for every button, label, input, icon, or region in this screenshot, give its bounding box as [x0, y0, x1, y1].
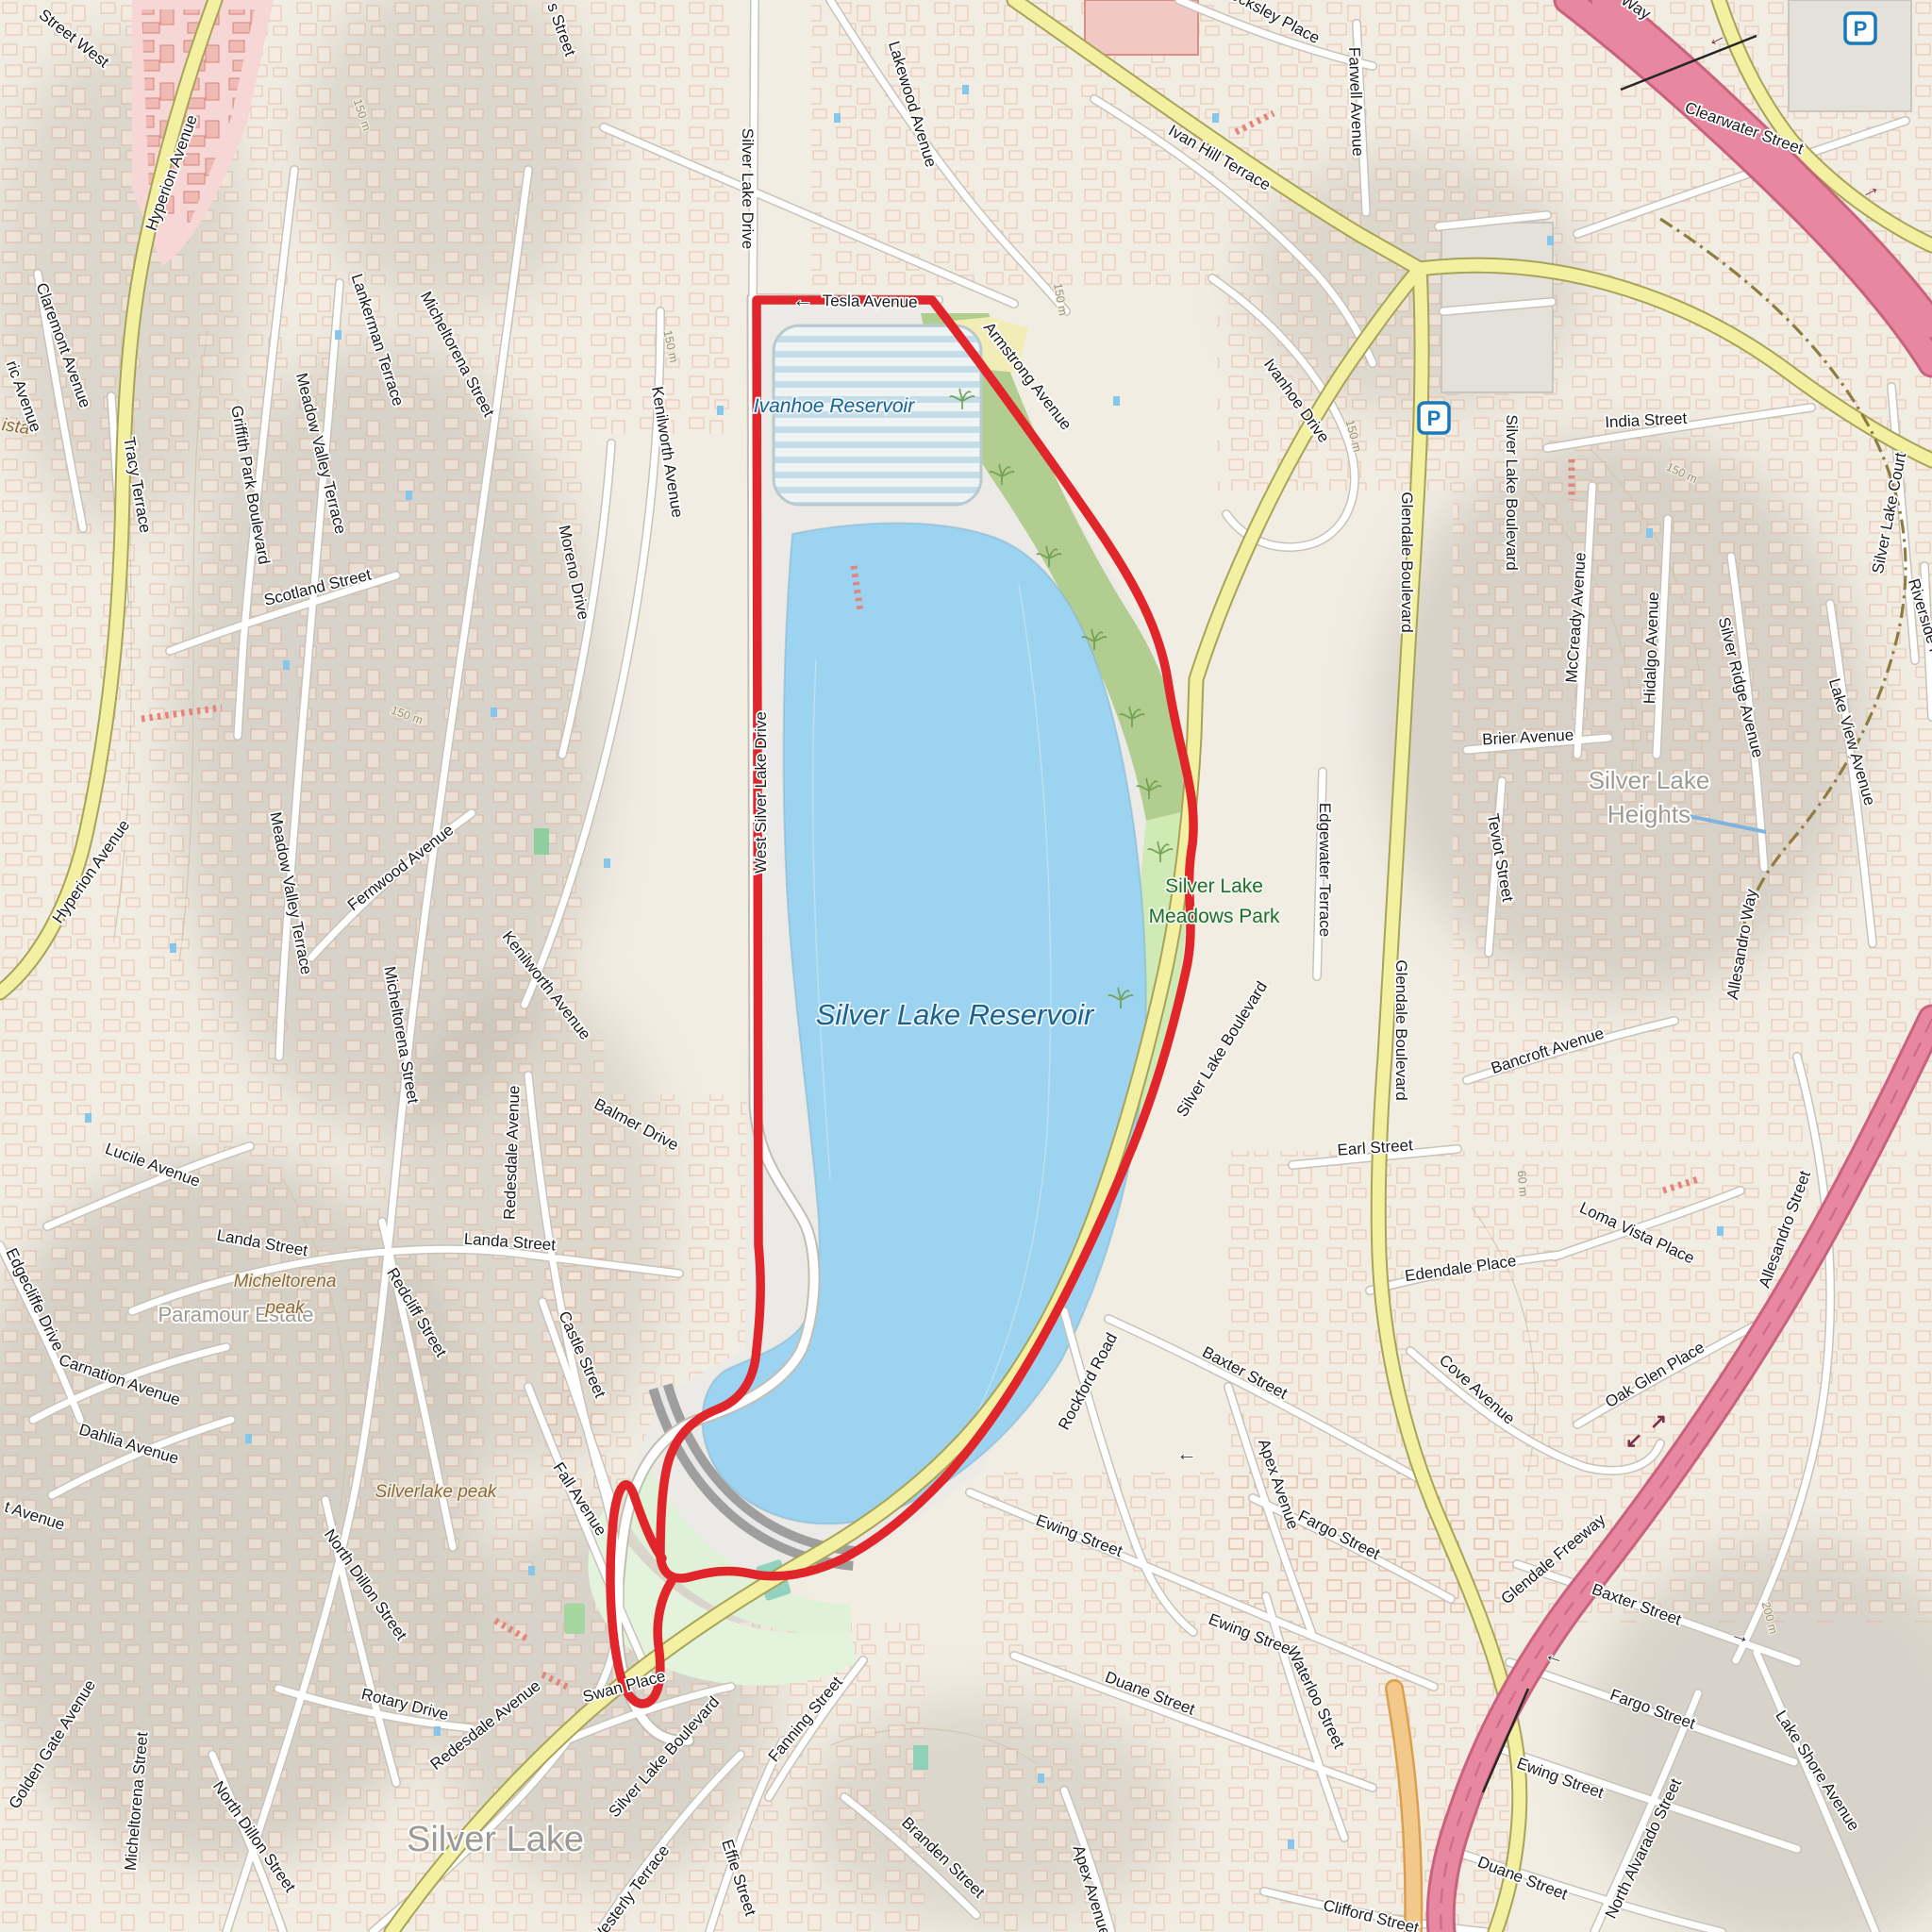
building-cluster [0, 0, 736, 434]
pool [491, 708, 497, 717]
building-cluster [981, 1472, 1509, 1932]
map-svg[interactable]: P P ← → ← ← ← → ↙ ↗ Ivanhoe Reservoir Si… [0, 0, 1932, 1932]
label-ivanhoe-reservoir: Ivanhoe Reservoir [754, 395, 915, 417]
sports-pitch [913, 1745, 928, 1770]
label-tesla-avenue: Tesla Avenue [823, 291, 918, 311]
pool [434, 1726, 441, 1736]
label-silver-lake-heights-1: Silver Lake [1589, 766, 1710, 794]
label-meadows-park-2: Meadows Park [1149, 906, 1280, 927]
label-silver-lake-drive: Silver Lake Drive [739, 128, 757, 250]
school-building [1085, 0, 1198, 55]
pool [1113, 396, 1120, 406]
pool [1288, 1840, 1294, 1849]
pool [1212, 113, 1219, 123]
sports-pitch [564, 1604, 585, 1634]
label-silver-lake-boulevard: Silver Lake Boulevard [1503, 414, 1521, 570]
label-farwell-avenue: Farwell Avenue [1345, 47, 1367, 158]
pool [335, 330, 341, 340]
label-silverlake-peak: Silverlake peak [375, 1482, 498, 1502]
parking-icon: P [1845, 13, 1875, 43]
label-contour-60m: 60 m [1515, 1170, 1530, 1197]
pool [1717, 1226, 1724, 1236]
map-canvas[interactable]: P P ← → ← ← ← → ↙ ↗ Ivanhoe Reservoir Si… [0, 0, 1932, 1932]
pool [406, 491, 412, 500]
label-silver-lake-neighborhood: Silver Lake [407, 1820, 584, 1859]
pool [604, 858, 610, 868]
label-glendale-boulevard: Glendale Boulevard [1398, 491, 1416, 632]
sports-pitch [534, 828, 549, 855]
freeway-arrow-icon: ↗ [1650, 1409, 1667, 1433]
pool [962, 85, 969, 94]
label-micheltorena-peak-1: Micheltorena [234, 1272, 337, 1291]
parking-icon: P [1419, 403, 1449, 433]
pool [283, 660, 290, 670]
label-west-silver-lake-drive: West Silver Lake Drive [752, 711, 770, 874]
pool [85, 1113, 92, 1123]
freeway-arrow-icon: ↙ [1625, 1428, 1642, 1452]
pool [1038, 1774, 1044, 1783]
pool [528, 1566, 535, 1575]
label-edgewater-terrace: Edgewater Terrace [1316, 803, 1334, 937]
parking-icon-letter: P [1854, 17, 1868, 41]
label-silver-lake-heights-2: Heights [1607, 800, 1690, 828]
pool [834, 113, 841, 123]
label-glendale-boulevard: Glendale Boulevard [1392, 959, 1410, 1100]
pool [170, 943, 176, 953]
parking-icon-letter: P [1427, 407, 1441, 430]
pool [245, 1434, 252, 1443]
oneway-arrow-icon: ← [792, 288, 813, 311]
label-meadows-park-1: Silver Lake [1165, 875, 1263, 897]
oneway-arrow-icon: ← [1176, 1441, 1197, 1465]
pool [1547, 236, 1554, 245]
pool [1646, 528, 1653, 538]
label-silver-lake-reservoir: Silver Lake Reservoir [816, 998, 1095, 1031]
label-micheltorena-peak-2: peak [264, 1298, 306, 1318]
pool [717, 406, 724, 415]
